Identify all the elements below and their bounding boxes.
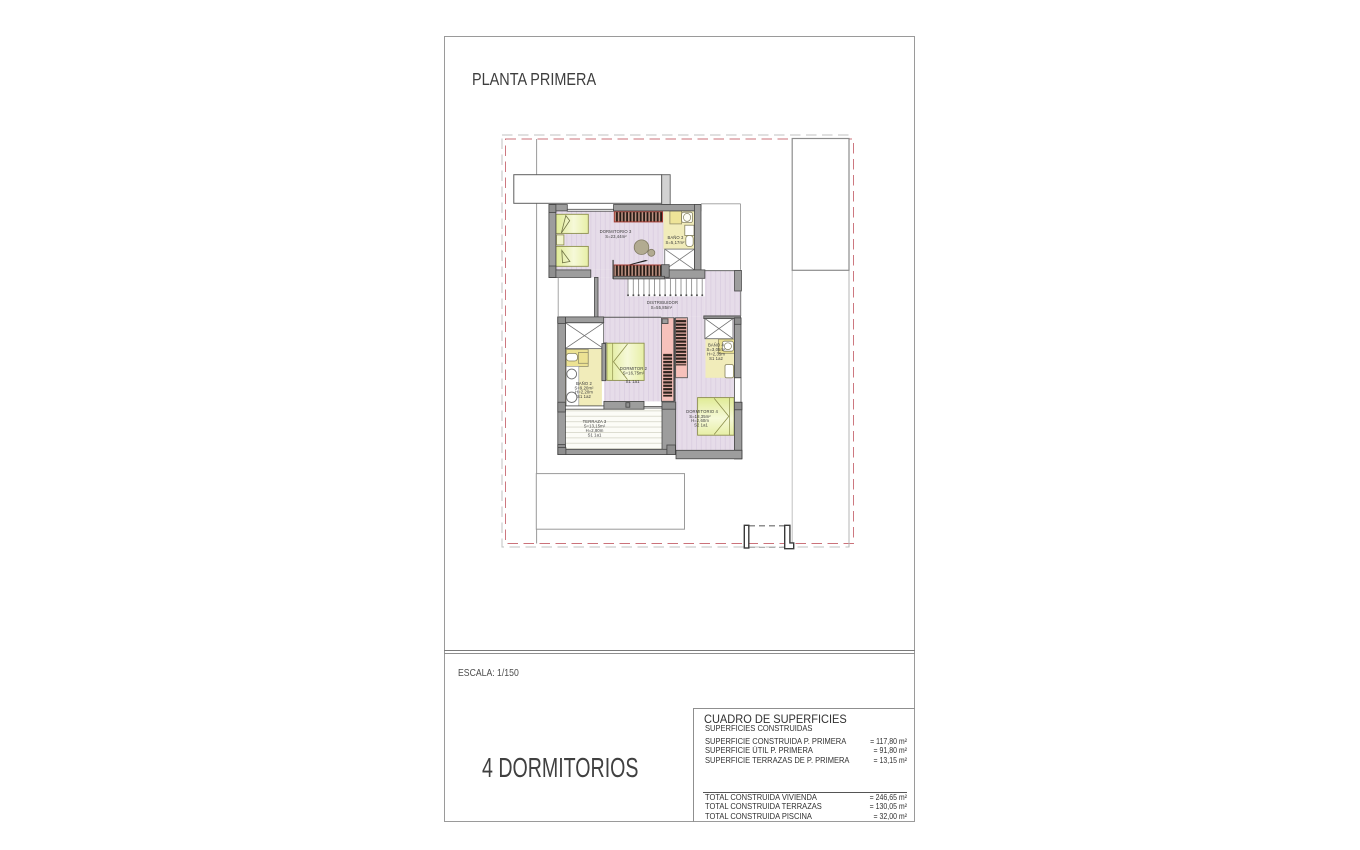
svg-text:S=16,75m²: S=16,75m² <box>623 370 645 375</box>
svg-text:S1 1a1: S1 1a1 <box>626 379 640 384</box>
svg-text:S=55,85m²: S=55,85m² <box>651 305 673 310</box>
svg-text:S1 1a1: S1 1a1 <box>588 432 602 437</box>
svg-text:S=5,17m²: S=5,17m² <box>665 240 685 245</box>
svg-text:S1 1a2: S1 1a2 <box>709 356 723 361</box>
svg-text:S1 1a2: S1 1a2 <box>577 394 591 399</box>
svg-text:S2 1a1: S2 1a1 <box>694 422 708 427</box>
svg-text:S=23,44m²: S=23,44m² <box>605 234 627 239</box>
